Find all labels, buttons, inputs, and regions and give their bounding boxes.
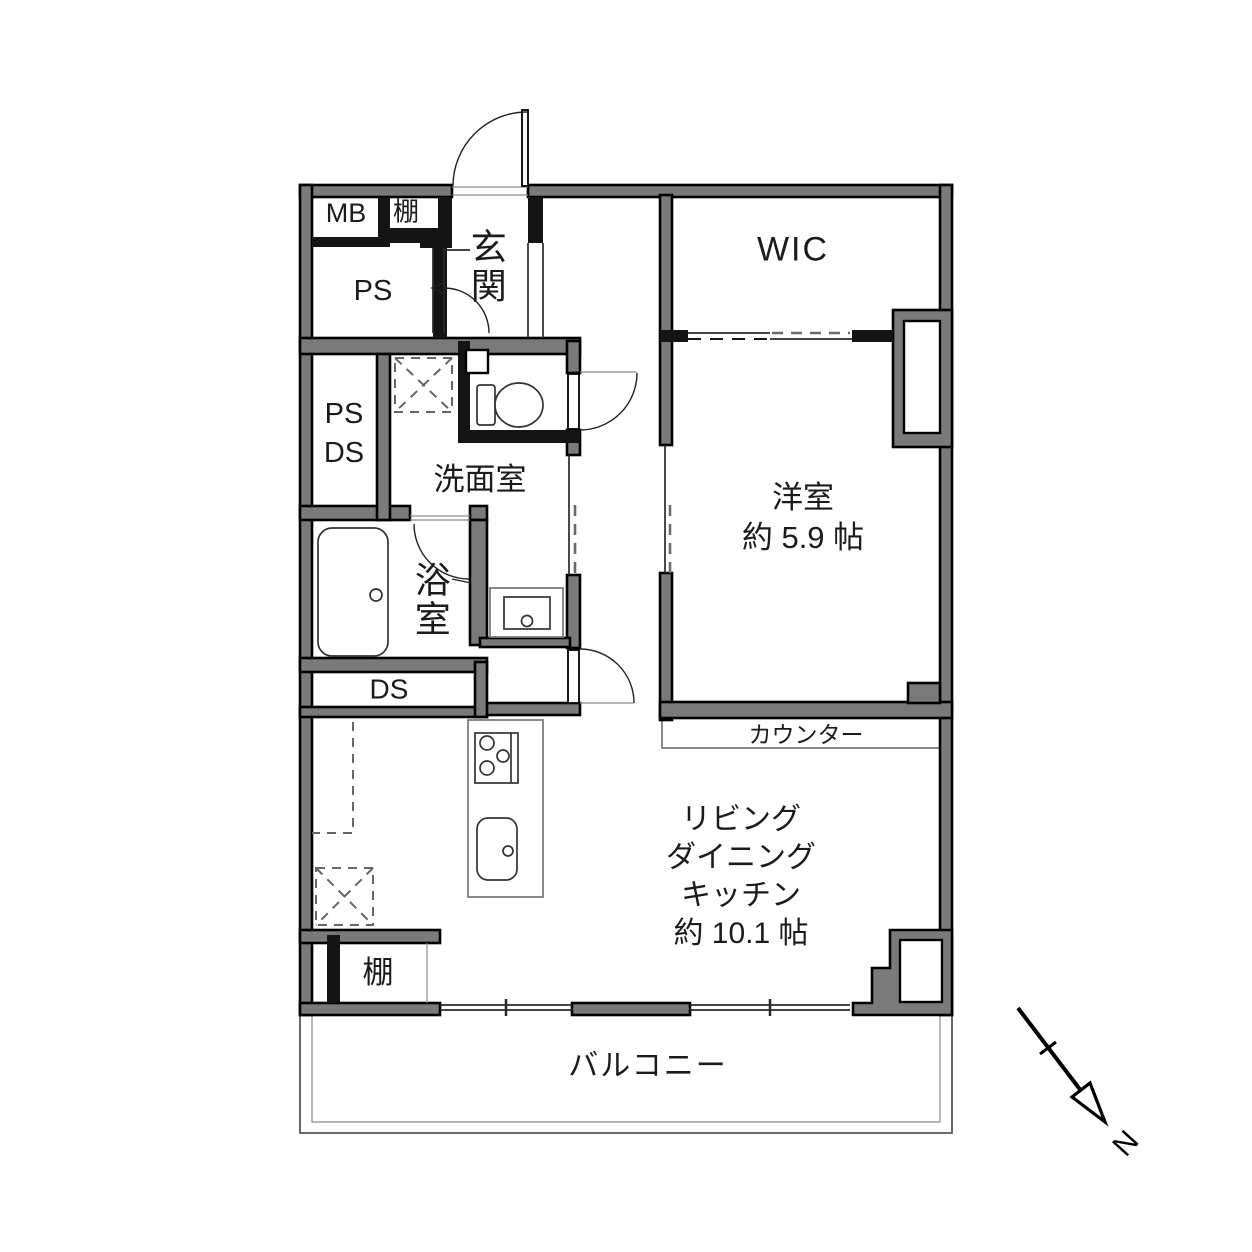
label-western-room-size: 約 5.9 帖 bbox=[742, 518, 864, 558]
washing-machine-space-icon bbox=[395, 358, 452, 412]
label-entrance: 玄関 bbox=[466, 228, 506, 306]
entrance-door-icon bbox=[453, 110, 528, 186]
walls bbox=[300, 185, 952, 1015]
ldk-door-icon bbox=[568, 649, 634, 703]
label-ds-mid: DS bbox=[324, 438, 364, 470]
label-ldk-line3: キッチン bbox=[681, 877, 801, 915]
floor-plan: N MB 棚 PS 玄関 WIC PS DS 洗面室 浴室 DS 洋室 約 5.… bbox=[0, 0, 1252, 1252]
label-pipe-space: PS bbox=[354, 276, 393, 308]
north-arrow-icon: N bbox=[1018, 1008, 1145, 1163]
label-ldk-size: 約 10.1 帖 bbox=[673, 915, 808, 953]
label-shelf-bottom: 棚 bbox=[363, 956, 394, 990]
label-western-room: 洋室 約 5.9 帖 bbox=[742, 478, 864, 558]
north-label: N bbox=[1106, 1125, 1145, 1163]
bathtub-icon bbox=[318, 528, 388, 656]
label-meter-box: MB bbox=[326, 199, 367, 229]
toilet-duct bbox=[466, 350, 488, 373]
label-ldk: リビング ダイニング キッチン 約 10.1 帖 bbox=[666, 801, 816, 953]
kitchen-counter bbox=[468, 720, 543, 897]
washbasin-icon bbox=[490, 588, 563, 637]
label-walk-in-closet: WIC bbox=[757, 231, 829, 268]
label-ds-band: DS bbox=[370, 675, 409, 706]
appliance-space-icon bbox=[316, 868, 373, 925]
refrigerator-space-icon bbox=[312, 722, 353, 833]
label-balcony: バルコニー bbox=[568, 1050, 727, 1083]
label-western-room-name: 洋室 bbox=[772, 478, 834, 518]
toilet-icon bbox=[477, 383, 543, 427]
label-counter: カウンター bbox=[749, 722, 864, 747]
label-ps-mid: PS bbox=[325, 399, 364, 431]
toilet-door-icon bbox=[568, 372, 637, 430]
label-ldk-line1: リビング bbox=[681, 801, 801, 839]
label-shelf-top: 棚 bbox=[393, 198, 419, 227]
label-ldk-line2: ダイニング bbox=[666, 839, 816, 877]
label-bathroom: 浴室 bbox=[410, 561, 450, 639]
label-washroom: 洗面室 bbox=[434, 463, 527, 497]
